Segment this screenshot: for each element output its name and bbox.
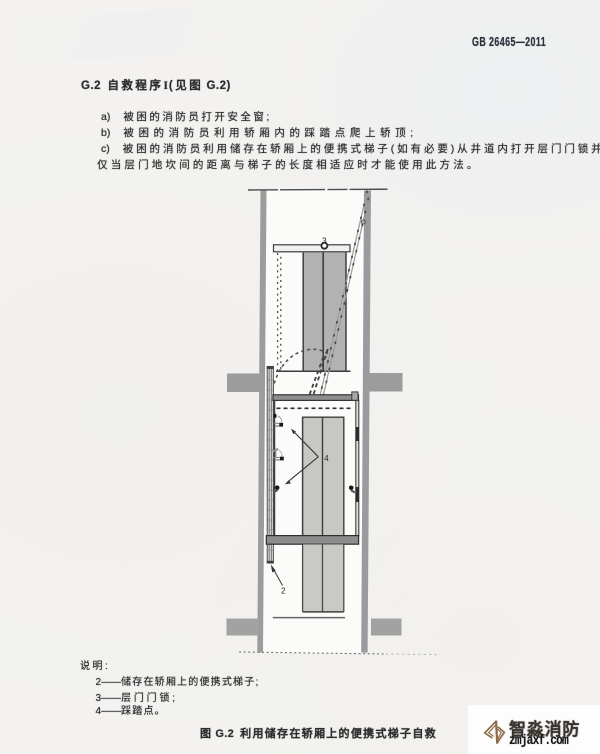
svg-text:4: 4 bbox=[324, 454, 329, 463]
svg-text:3: 3 bbox=[322, 237, 327, 246]
svg-text:2: 2 bbox=[281, 587, 286, 596]
